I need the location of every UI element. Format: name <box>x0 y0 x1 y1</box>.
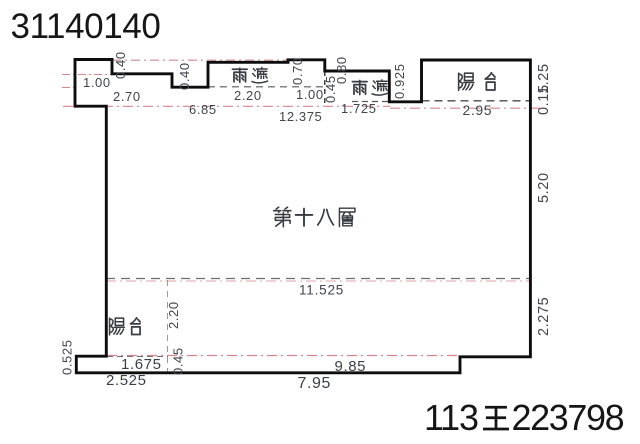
svg-text:7.95: 7.95 <box>298 375 332 392</box>
svg-text:0.45: 0.45 <box>171 347 186 375</box>
svg-text:5.20: 5.20 <box>536 172 552 203</box>
svg-text:0.925: 0.925 <box>392 63 407 99</box>
svg-text:6.85: 6.85 <box>189 102 217 117</box>
svg-text:2.20: 2.20 <box>166 301 181 329</box>
svg-text:2.275: 2.275 <box>536 297 552 336</box>
svg-text:11.525: 11.525 <box>299 283 344 298</box>
svg-text:0.40: 0.40 <box>113 51 128 79</box>
svg-text:2.95: 2.95 <box>463 102 493 118</box>
svg-text:2.525: 2.525 <box>106 372 147 389</box>
svg-text:0.80: 0.80 <box>334 56 349 84</box>
svg-text:113: 113 <box>424 397 478 438</box>
svg-text:0.40: 0.40 <box>177 62 192 90</box>
svg-text:2.70: 2.70 <box>113 89 141 104</box>
svg-text:12.375: 12.375 <box>279 109 322 124</box>
svg-text:2.20: 2.20 <box>234 88 262 103</box>
svg-text:223798: 223798 <box>512 397 624 438</box>
svg-text:1.725: 1.725 <box>341 101 377 116</box>
svg-text:0.525: 0.525 <box>60 339 75 375</box>
svg-text:31140140: 31140140 <box>11 7 161 46</box>
svg-text:0.15: 0.15 <box>536 84 552 115</box>
svg-text:1.00: 1.00 <box>83 75 111 90</box>
svg-text:1.675: 1.675 <box>121 356 162 373</box>
svg-text:1.00: 1.00 <box>296 87 324 102</box>
svg-text:0.70: 0.70 <box>290 57 305 85</box>
svg-text:9.85: 9.85 <box>335 358 367 375</box>
